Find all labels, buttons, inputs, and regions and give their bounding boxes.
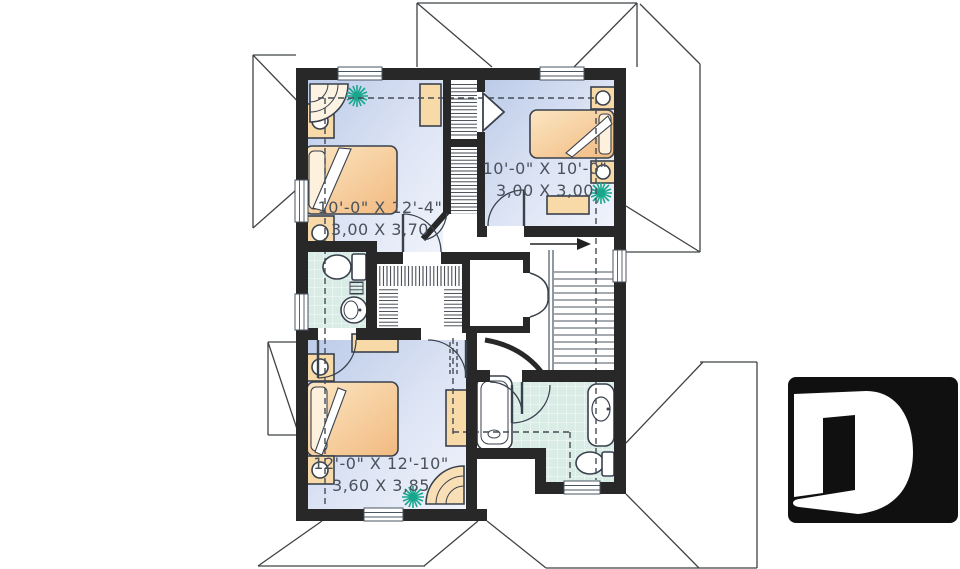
faucet (359, 309, 362, 312)
window (338, 67, 382, 80)
room-dimension-imperial: 10'-0" X 12'-4" (318, 198, 443, 217)
window (295, 294, 308, 330)
floor-plan-canvas: 10'-0" X 12'-4" 3,00 X 3,70 10'-0" X 10'… (0, 0, 960, 569)
lamp-icon (596, 91, 610, 105)
closet-rod (450, 82, 477, 137)
room-dimension-imperial: 10'-0" X 10'-0" (483, 159, 608, 178)
dresser (446, 390, 467, 446)
closet-rod (450, 147, 477, 214)
faucet (607, 408, 610, 411)
staircase (549, 250, 614, 370)
vanity (588, 384, 614, 446)
window (540, 67, 584, 80)
closet-rod (379, 289, 398, 327)
room-dimension-imperial: 12'-0" X 12'-10" (313, 454, 448, 473)
floor-plan-page: 10'-0" X 12'-4" 3,00 X 3,70 10'-0" X 10'… (0, 0, 960, 569)
company-logo (788, 377, 958, 523)
toilet-tank (602, 452, 614, 476)
window (364, 508, 403, 521)
window (564, 481, 600, 494)
toilet-tank (352, 254, 366, 280)
window (613, 250, 626, 282)
room-dimension-metric: 3,00 X 3,00 (496, 181, 594, 200)
closet-rod (444, 289, 462, 327)
plant-icon (346, 85, 368, 107)
toilet (323, 255, 351, 279)
room-dimension-metric: 3,00 X 3,70 (331, 220, 429, 239)
sink (341, 297, 367, 323)
window (295, 180, 308, 222)
closet-rod (379, 266, 463, 286)
bifold-closet-doors (530, 273, 548, 317)
shelf (350, 282, 363, 294)
toilet (576, 452, 604, 474)
room-dimension-metric: 3,60 X 3,85 (332, 476, 430, 495)
stairs-direction-arrow (530, 238, 591, 250)
dresser (420, 84, 441, 126)
